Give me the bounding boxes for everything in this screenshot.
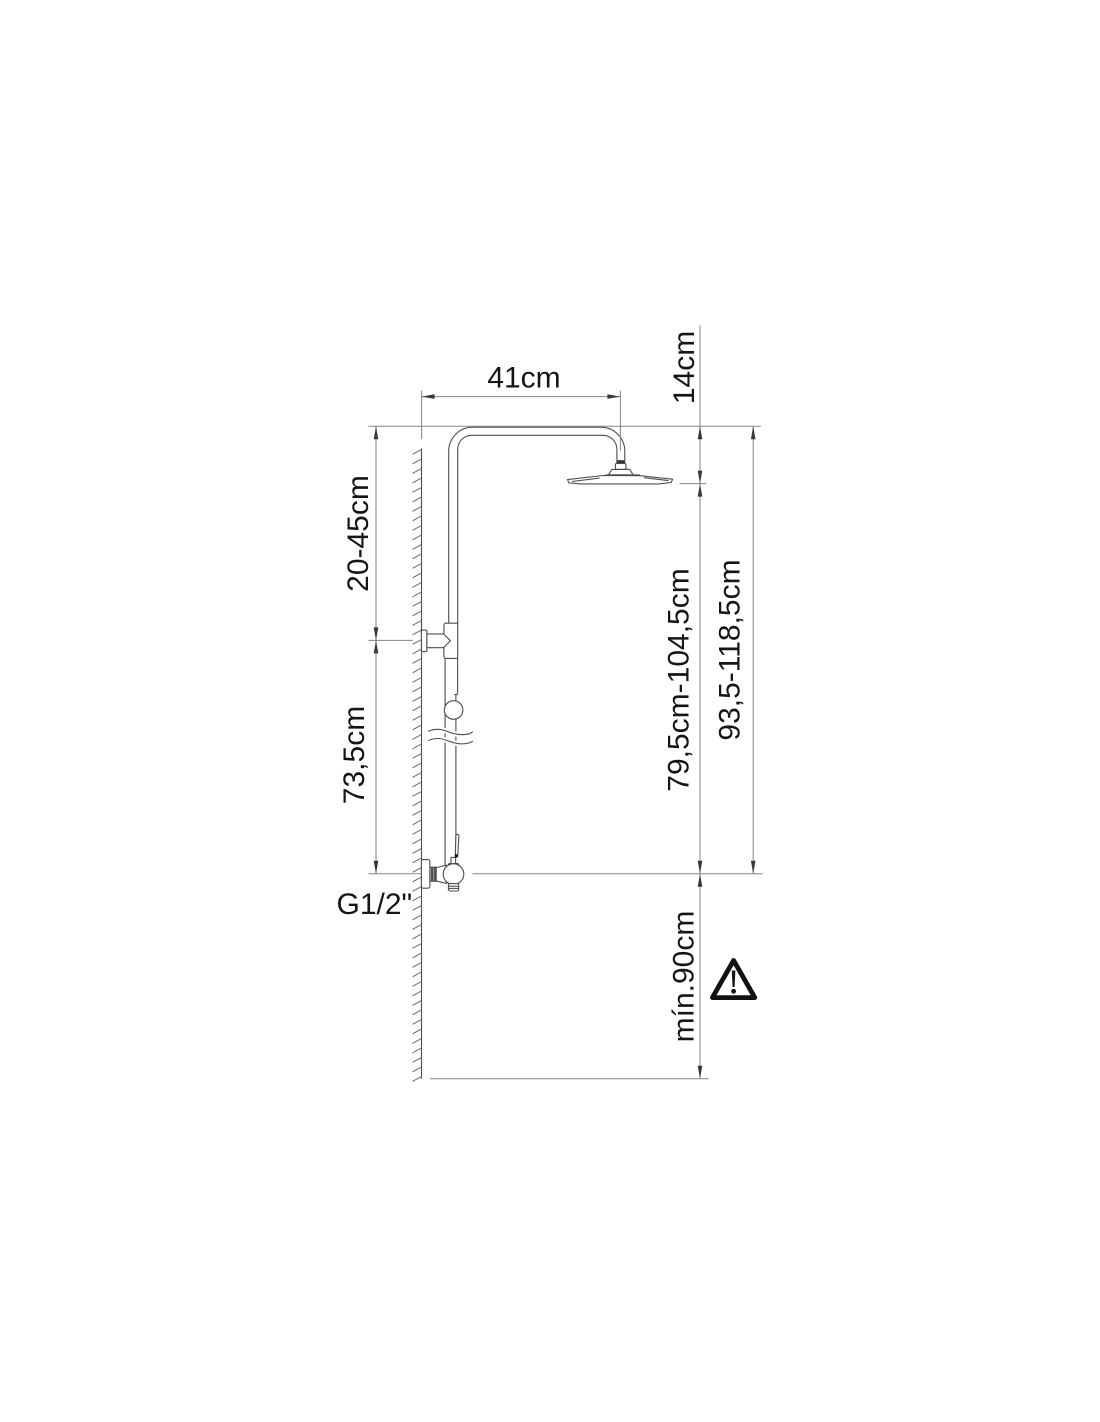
svg-text:14cm: 14cm (668, 331, 701, 404)
svg-text:93,5-118,5cm: 93,5-118,5cm (714, 559, 747, 740)
svg-text:G1/2": G1/2" (337, 888, 413, 921)
svg-text:41cm: 41cm (487, 362, 560, 395)
svg-text:mín.90cm: mín.90cm (668, 911, 701, 1043)
svg-text:20-45cm: 20-45cm (342, 475, 375, 592)
svg-text:73,5cm: 73,5cm (338, 706, 371, 804)
svg-text:79,5cm-104,5cm: 79,5cm-104,5cm (663, 568, 696, 791)
